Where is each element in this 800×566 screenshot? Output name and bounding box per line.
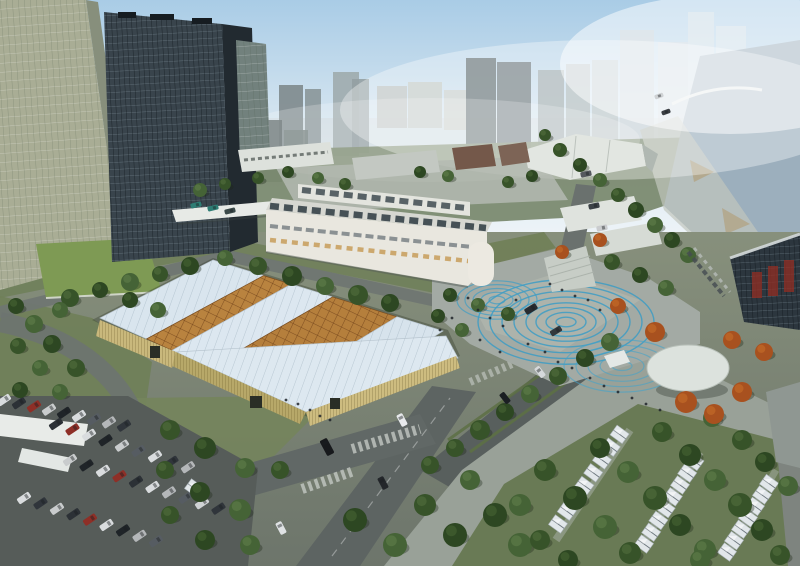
rooftop-unit	[118, 12, 136, 18]
factory-round-corner	[468, 242, 494, 286]
pavilion-entrance	[330, 398, 340, 409]
aerial-render-viewport	[0, 0, 800, 566]
rooftop-unit	[192, 18, 212, 24]
round-canopy	[647, 345, 729, 391]
tower-dark-front	[104, 12, 230, 262]
rooftop-unit	[150, 14, 174, 20]
red-accent	[752, 272, 762, 298]
brown-building	[452, 144, 496, 170]
masterplan-aerial-rendering	[0, 0, 800, 566]
red-accent	[768, 266, 778, 296]
brown-building	[498, 142, 530, 166]
tower-rear	[236, 40, 270, 162]
pavilion-entrance	[150, 346, 160, 358]
pavilion-entrance	[250, 396, 262, 408]
red-accent	[784, 260, 794, 292]
